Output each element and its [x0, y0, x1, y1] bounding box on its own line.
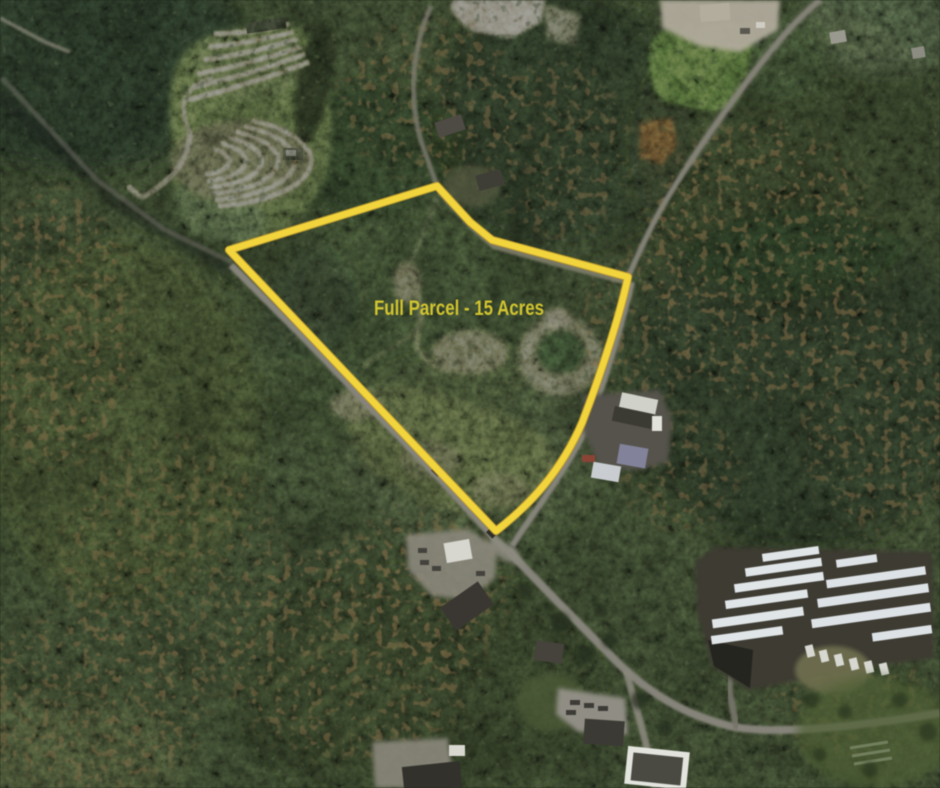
svg-text:Full Parcel - 15 Acres: Full Parcel - 15 Acres — [374, 297, 544, 320]
